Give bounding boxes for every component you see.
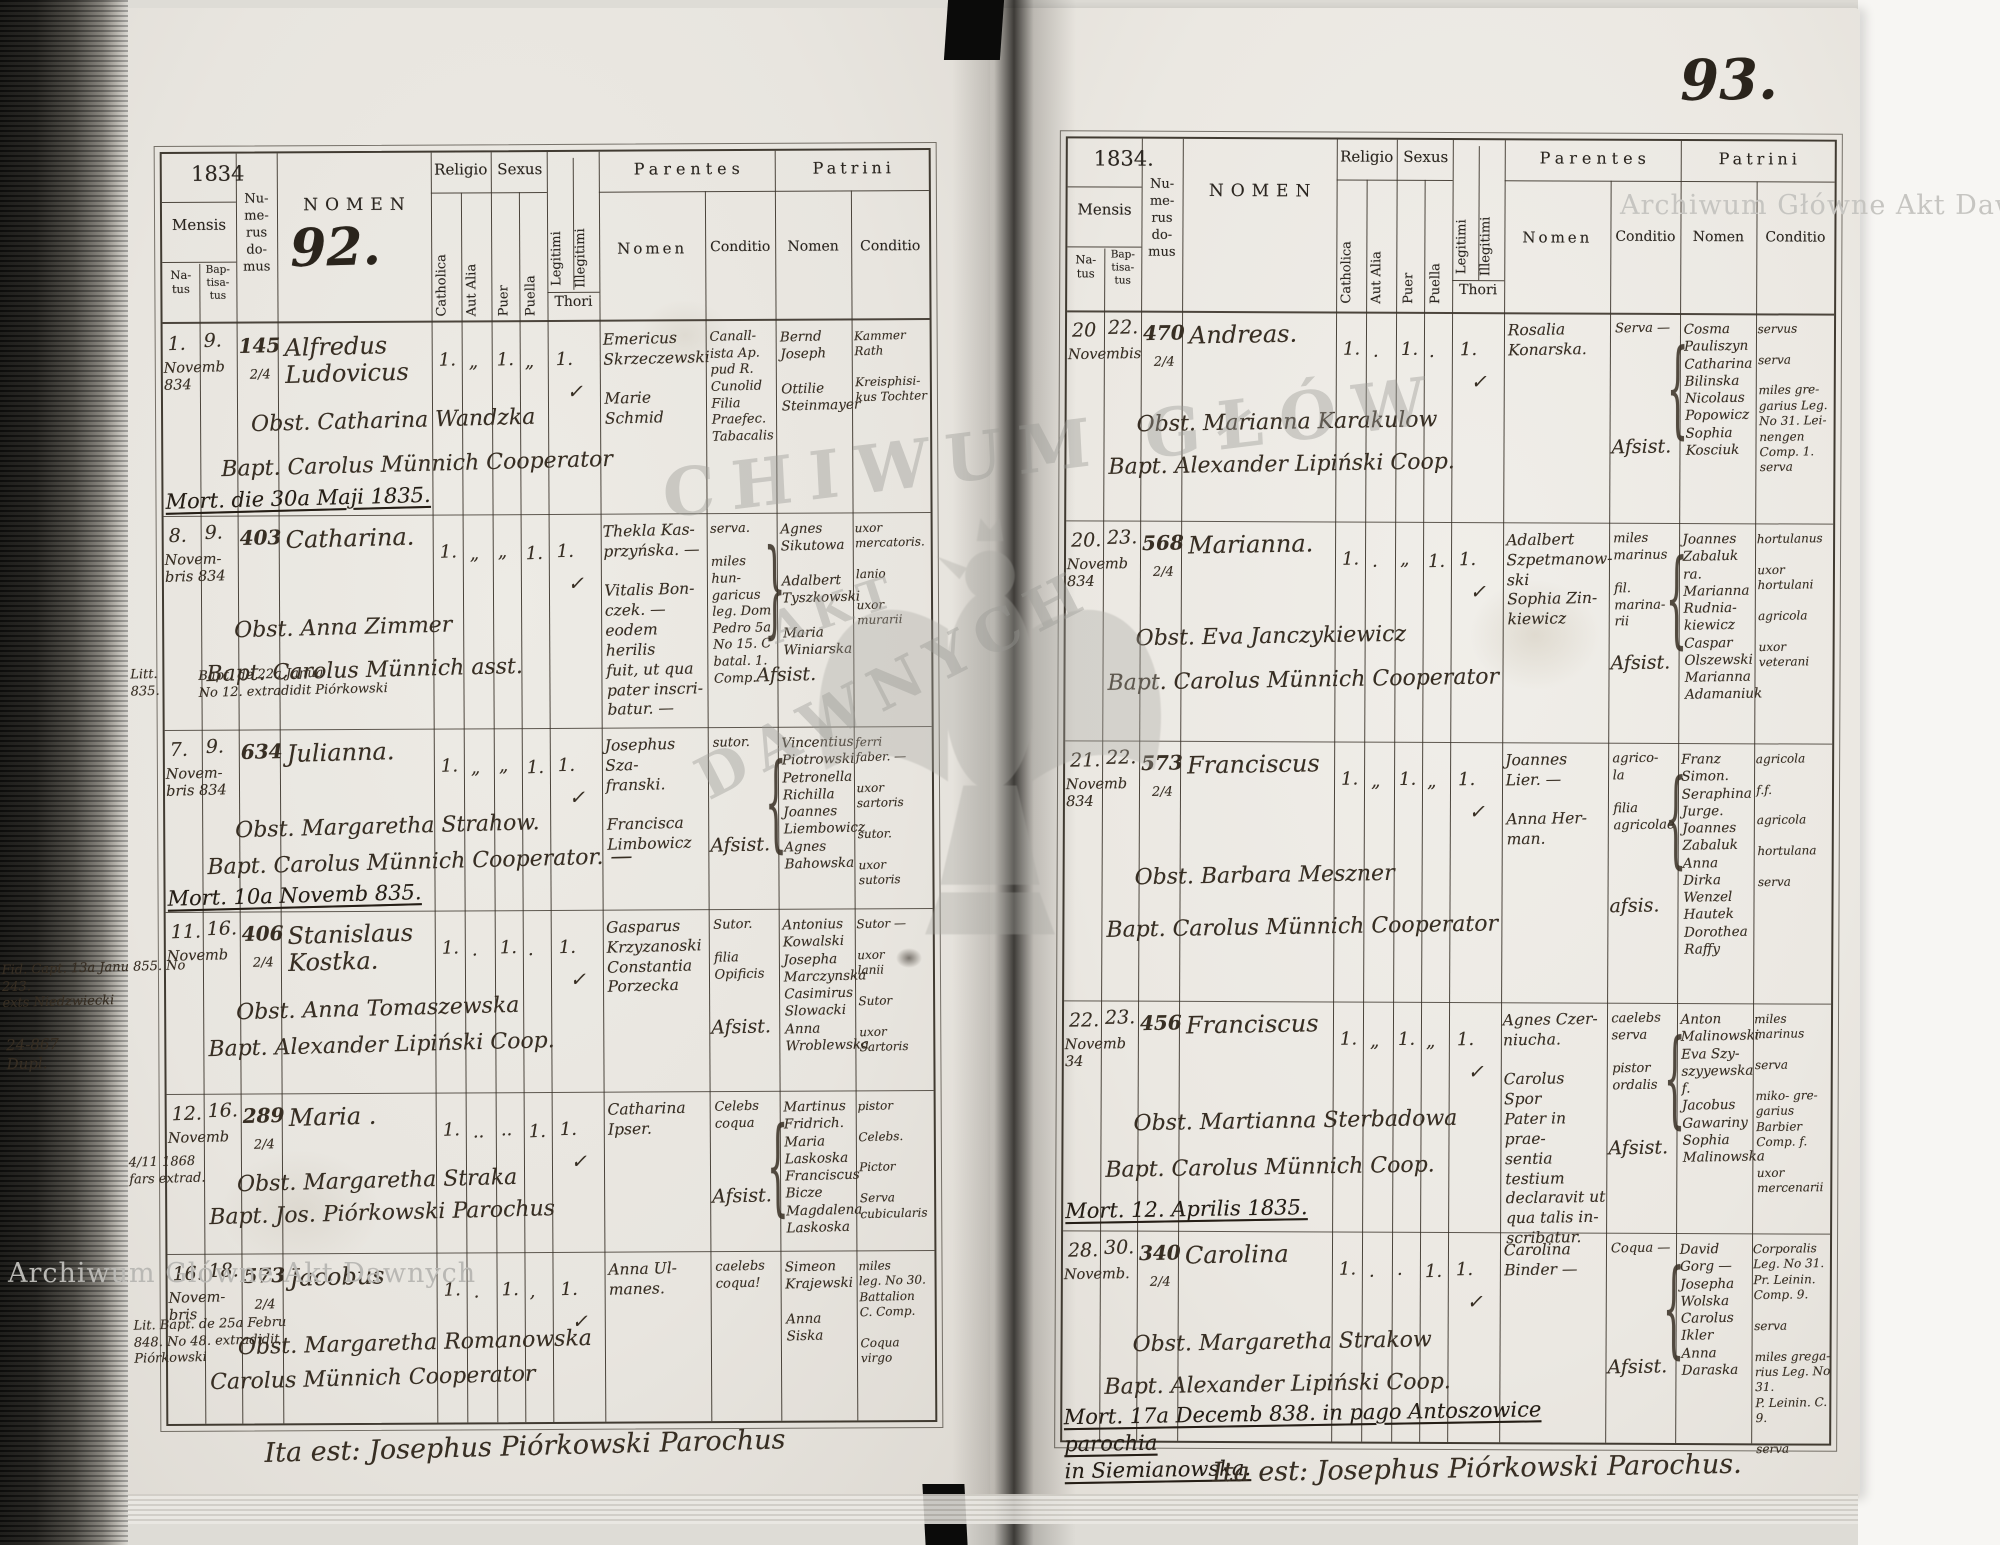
parents-name: Adalbert Szpetmanow- ski Sophia Zin- kie… [1506,530,1610,631]
right-page-table: 1834. Mensis Na- tus Bap- tisa- tus Nu- … [1060,136,1837,1445]
child-name: Julianna. [286,737,439,768]
house-number: 634 [240,739,282,766]
midwife-line: Obst. Margaretha Strakow [1132,1325,1472,1359]
parents-name: Agnes Czer- niucha. Carolus Spor Pater i… [1503,1010,1609,1250]
puella-label: Puella [523,216,539,316]
godparents-condition: uxor mercatoris. lanio uxor murarii [854,519,937,629]
legitimi-label: Legitimi [1454,160,1469,274]
godparents-name: Anton Malinowski Eva Szy- szyyewska f. J… [1680,1011,1753,1168]
mark-aut-alia: „ [471,756,481,779]
godparents-condition: ferri faber. — uxor sartoris sutor. uxor… [855,733,939,889]
baptisatus-day: 9. [204,521,223,546]
baptisatus-day: 23. [1105,1005,1136,1030]
baptisatus-day: 9. [203,329,222,354]
natus-day: 8. [168,524,187,549]
religio-label: Religio [428,160,494,178]
godparents-condition: pistor Celebs. Pictor Serva cubicularis [857,1097,940,1222]
illegitimi-label: Illegitimi [573,170,589,288]
natus-day: 7. [169,738,188,763]
mark-puer: . [1397,1258,1403,1281]
mark-puer: 1. [501,1278,519,1301]
house-number-fraction: 2/4 [253,955,274,972]
parents-name: Anna Ul- manes. [608,1258,711,1300]
baptizer-line: Bapt. Carolus Münnich Coop. [1105,1150,1525,1185]
house-number-fraction: 2/4 [1154,355,1175,372]
month-note: Novemb 834 [163,359,244,394]
nomen-label: NOMEN [1183,181,1337,202]
parentes-conditio-label: Conditio [705,239,775,255]
mark-catholica: 1. [442,936,460,959]
mark-puer: „ [499,754,509,777]
mark-aut-alia: . [1369,1260,1375,1283]
baptizer-line: Bapt. Alexander Lipiński Coop. [1104,1367,1524,1402]
parents-name: Thekla Kas- przyńska. — Vitalis Bon- cze… [603,520,710,721]
godparents-condition: Corporalis Leg. No 31. Pr. Leinin. Comp.… [1753,1241,1837,1457]
child-name: Alfredus Ludovicus [284,331,437,389]
checkmark-icon: ✓ [568,572,585,597]
mark-puer: „ [497,540,507,563]
midwife-line: Obst. Margaretha Strahow. [235,808,576,845]
house-number-fraction: 2/4 [1150,1275,1171,1292]
godparents-name: Martinus Fridrich. Maria Laskoska Franci… [783,1098,857,1238]
book-gutter-shadow [952,0,1076,1545]
midwife-line: Obst. Catharina Wandzka [251,402,592,439]
mark-aut-alia: . [1373,340,1379,363]
patrini-label: Patrini [775,158,929,178]
parentes-label: Parentes [599,159,775,179]
record-row: 11.16.Novemb4062/4Stanislaus Kostka.1..1… [166,908,934,1094]
mark-puella: 1. [525,542,543,565]
catholica-label: Catholica [434,205,450,317]
thori-label: Thori [547,294,599,310]
natus-day: 12. [171,1102,202,1127]
house-number: 403 [239,525,281,552]
record-row: 20.23.Novemb 8345682/4Marianna.1..„1.1.✓… [1065,520,1833,743]
godparents-name: Agnes Sikutowa Adalbert Tyszkowski Maria… [780,520,854,660]
assistens-note: Afsist. [711,1014,771,1040]
numerus-domus-label: Nu- me- rus do- mus [1141,177,1182,262]
mark-legitimi: 1. [559,1118,577,1141]
house-number: 456 [1140,1010,1182,1036]
checkmark-icon: ✓ [1469,800,1485,825]
mark-puella: . [528,938,534,961]
record-row: 2022.Novembis4702/4Andreas.1..1..1.✓Obst… [1066,310,1834,523]
baptizer-line: Bapt. Carolus Münnich Cooperator [1106,910,1526,945]
record-row: 12.16.Novemb2892/4Maria .1.....1.1.✓Obst… [167,1090,935,1254]
godparents-name: David Gorg — Josepha Wolska Carolus Ikle… [1680,1241,1752,1380]
mark-legitimi: 1. [560,1278,578,1301]
assistens-note: Afsist. [756,662,816,688]
mark-catholica: 1. [1343,337,1361,360]
mark-puella: . [1429,340,1435,363]
mark-aut-alia: „ [1370,1030,1380,1053]
patrini-label: Patrini [1681,149,1835,169]
patrini-nomen-label: Nomen [1680,229,1756,245]
record-row: 21.22.Novemb 8345732/4Franciscus1.„1.„1.… [1064,740,1832,1003]
assistens-note: Afsist. [710,832,770,858]
checkmark-icon: ✓ [569,786,586,811]
mark-catholica: 1. [441,754,459,777]
godparents-condition: agricola f.f. agricola hortulana serva [1756,751,1838,891]
baptisatus-day: 22. [1108,315,1139,340]
midwife-line: Obst. Margaretha Straka [237,1162,578,1199]
patrini-conditio-label: Conditio [1756,229,1834,245]
mark-puella: 1. [1428,550,1446,573]
margin-note: Fid. Capt. 13a Janu 855. No 243. exts Ni… [1,958,212,1013]
assistens-note: Afsist. [1607,1354,1667,1379]
house-number: 406 [241,921,283,948]
mark-aut-alia: „ [1371,770,1381,793]
godparents-condition: miles marinus serva miko- gre- garius Ba… [1754,1011,1837,1197]
book-strap-top [944,0,1004,60]
godparents-condition: miles leg. No 30. Battalion C. Comp. Coq… [858,1257,941,1367]
month-note: Novembis [1068,346,1148,364]
page-number: 93. [1680,44,1779,117]
mark-aut-alia: . [1372,550,1378,573]
mark-legitimi: 1. [556,540,574,563]
baptisatus-day: 18. [208,1258,239,1283]
house-number: 573 [243,1263,285,1290]
child-name: Marianna. [1188,530,1340,559]
parents-condition: Canall- ista Ap. pud R. Cunolid Filia Pr… [709,328,776,446]
assistens-note: Afsist. [1608,1136,1668,1161]
parents-name: Joannes Lier. — Anna Her- man. [1505,750,1609,851]
month-note: Novem- bris 834 [164,551,245,586]
parentes-conditio-label: Conditio [1610,229,1680,245]
mark-puella: , [529,1280,535,1303]
godparents-name: Bernd Joseph Ottilie Steinmayer [780,328,852,416]
baptisatus-day: 9. [205,735,224,760]
baptizer-line: Bapt. Jos. Piórkowski Parochus [209,1193,630,1232]
checkmark-icon: ✓ [567,380,584,405]
mark-aut-alia: „ [469,542,479,565]
aut-alia-label: Aut Alia [1369,198,1384,304]
catholica-label: Catholica [1339,192,1354,304]
page-number: 92. [289,214,381,283]
book-bottom-page-edges [128,1494,1858,1524]
puella-label: Puella [1428,204,1443,304]
parentes-nomen-label: Nomen [1504,228,1610,246]
mark-puer: 1. [500,936,518,959]
mark-legitimi: 1. [1458,768,1476,791]
scan-background [1858,0,2000,1545]
godparents-condition: Kammer Rath Kreisphisi- kus Tochter [854,327,936,406]
parents-name: Josephus Sza- franski. Francisca Limbowi… [605,734,710,856]
mark-puella: 1. [529,1120,547,1143]
mark-puella: 1. [527,756,545,779]
nomen-label: NOMEN [277,195,431,216]
godparents-condition: hortulanus uxor hortulani agricola uxor … [1757,531,1839,671]
aut-alia-label: Aut Alia [464,210,480,316]
margin-note: Lit. Bapt. de 25a Febru 848. No 48. extr… [133,1312,384,1368]
midwife-line: Obst. Martianna Sterbadowa [1133,1104,1473,1138]
mark-catholica: 1. [443,1278,461,1301]
godparents-name: Joannes Zabaluk ra. Marianna Rudnia- kie… [1682,531,1755,705]
baptisatus-label: Bap- tisa- tus [199,264,236,304]
child-name: Stanislaus Kostka. [287,919,440,977]
mark-legitimi: 1. [558,754,576,777]
godparents-name: Vincentius Piotrowski Petronella Richill… [781,734,855,874]
mensis-label: Mensis [162,216,236,234]
godparents-name: Franz Simon. Seraphina Jurge. Joannes Za… [1681,751,1754,959]
puer-label: Puer [496,226,511,316]
record-row: 28.30.Novemb.3402/4Carolina1...1.1.✓Obst… [1062,1230,1830,1443]
assistens-note: Afsist. [1611,434,1671,459]
house-number: 573 [1141,750,1183,776]
month-note: Novemb [168,1129,248,1148]
mark-puella: „ [524,350,534,373]
house-number-fraction: 2/4 [250,367,271,384]
checkmark-icon: ✓ [1470,580,1486,605]
natus-day: 11. [170,920,201,945]
house-number: 289 [242,1103,284,1130]
checkmark-icon: ✓ [570,968,587,993]
baptisatus-day: 22. [1106,745,1137,770]
puer-label: Puer [1401,214,1416,304]
record-row: 8.9.Novem- bris 834403Catharina.1.„„1.1.… [164,512,932,730]
year-label: 1834. [1068,146,1180,170]
parents-name: Rosalia Konarska. [1508,320,1611,361]
godparents-name: Simeon Krajewski Anna Siska [785,1258,857,1346]
month-note: Novem- bris 834 [166,765,247,800]
midwife-line: Obst. Anna Zimmer [234,609,575,646]
book-page-edges [0,0,128,1545]
baptisatus-label: Bap- tisa- tus [1104,248,1141,288]
mark-legitimi: 1. [1459,548,1477,571]
mark-puer: .. [500,1118,512,1141]
mark-puella: „ [1426,1030,1436,1053]
baptizer-line: Bapt. Carolus Münnich Cooperator [1107,663,1527,698]
mark-catholica: 1. [1340,1027,1358,1050]
illegitimi-label: Illegitimi [1478,158,1494,276]
mark-legitimi: 1. [559,936,577,959]
assistens-note: Afsist. [1610,650,1670,675]
baptisatus-day: 23. [1107,525,1138,550]
godparents-name: Cosma Pauliszyn Catharina Bilinska Nicol… [1684,321,1756,460]
house-number-fraction: 2/4 [1152,785,1173,802]
mark-catholica: 1. [1342,547,1360,570]
parents-condition: caelebs coqua! [715,1258,780,1293]
patrini-nomen-label: Nomen [775,238,851,254]
margin-note: 4/11 1868 fars extrad. [129,1152,260,1189]
house-number: 568 [1142,530,1184,556]
month-note: Novemb 34 [1065,1036,1146,1071]
table-header: 1834. Mensis Na- tus Bap- tisa- tus Nu- … [1068,138,1835,141]
mark-puer: 1. [1401,338,1419,361]
religio-label: Religio [1334,147,1400,165]
mark-legitimi: 1. [1456,1258,1474,1281]
numerus-domus-label: Nu- me- rus do- mus [236,191,277,276]
mark-aut-alia: . [473,1280,479,1303]
baptizer-line: Bapt. Alexander Lipiński Coop. [208,1025,629,1064]
child-name: Catharina. [285,523,438,554]
parents-condition: Sutor. filia Opificis [713,916,779,984]
record-row: 1.9.Novemb 8341452/4Alfredus Ludovicus1.… [163,320,931,516]
mark-catholica: 1. [1341,767,1359,790]
checkmark-icon: ✓ [1467,1290,1483,1315]
assistens-note: afsis. [1609,893,1659,918]
mark-aut-alia: „ [468,350,478,373]
mark-legitimi: 1. [1457,1028,1475,1051]
scanned-register-spread: 1834 Mensis Na- tus Bap- tisa- tus Nu- m… [0,0,2000,1545]
child-name: Carolina [1185,1240,1337,1269]
mark-puer: 1. [1398,1028,1416,1051]
mark-catholica: 1. [438,348,456,371]
baptisatus-day: 16. [207,1098,238,1123]
house-number: 340 [1139,1240,1181,1266]
mark-aut-alia: .. [473,1120,485,1143]
mark-catholica: 1. [1339,1257,1357,1280]
checkmark-icon: ✓ [1471,370,1487,395]
child-name: Franciscus [1186,1010,1338,1039]
house-number: 470 [1143,320,1185,346]
natus-label: Na- tus [162,268,199,297]
margin-note: Bapt. de 22a Janua No 12. extradidit Pió… [198,661,499,702]
record-row: 16.18.Novem- bris5732/4Jacobus1..1.,1.✓O… [167,1250,935,1422]
mark-puella: 1. [1425,1260,1443,1283]
natus-day: 16. [172,1262,203,1287]
left-page-table: 1834 Mensis Na- tus Bap- tisa- tus Nu- m… [160,148,938,1426]
patrini-conditio-label: Conditio [851,238,929,254]
legitimi-label: Legitimi [549,172,565,286]
parents-name: Catharina Ipser. [607,1098,710,1140]
mark-legitimi: 1. [1460,338,1478,361]
midwife-line: Obst. Barbara Meszner [1134,858,1474,892]
mark-legitimi: 1. [555,348,573,371]
sexus-label: Sexus [492,160,548,178]
checkmark-icon: ✓ [1468,1060,1484,1085]
parentes-nomen-label: Nomen [599,239,705,258]
parents-name: Gasparus Krzyzanoski Constantia Porzecka [606,916,710,998]
record-row: 7.9.Novem- bris 834634Julianna.1.„„1.1.✓… [165,726,933,912]
house-number-fraction: 2/4 [1153,565,1174,582]
baptisatus-day: 16. [206,916,237,941]
mark-puer: „ [1400,548,1410,571]
mark-puer: 1. [1399,768,1417,791]
mensis-label: Mensis [1067,200,1141,218]
year-label: 1834 [162,161,274,186]
godparents-name: Antonius Kowalski Josepha Marczynska Cas… [782,916,856,1056]
month-note: Novemb 834 [1067,556,1148,591]
baptizer-line: Bapt. Alexander Lipiński Coop. [1108,447,1528,482]
child-name: Jacobus [289,1261,442,1292]
mark-catholica: 1. [439,540,457,563]
natus-day: 1. [167,332,186,357]
child-name: Maria . [288,1101,441,1132]
midwife-line: Obst. Marianna Karakulow [1136,405,1476,439]
month-note: Novemb 834 [1066,776,1147,811]
mark-puer: 1. [496,348,514,371]
child-name: Andreas. [1189,320,1341,349]
parentes-label: Parentes [1505,148,1681,168]
house-number: 145 [238,333,280,360]
baptisatus-day: 30. [1104,1235,1135,1260]
assistens-note: Afsist. [712,1183,772,1209]
godparents-condition: Sutor — uxor lanii Sutor uxor Sartoris [856,915,940,1055]
record-row: 22.23.Novemb 34456Franciscus1.„1.„1.✓Obs… [1063,1000,1831,1233]
death-note: Mort. 12. Aprilis 1835. [1065,1191,1525,1225]
mark-puella: „ [1427,770,1437,793]
mark-aut-alia: . [472,938,478,961]
thori-label: Thori [1452,282,1504,298]
child-name: Franciscus [1187,750,1339,779]
parents-name: Carolina Binder — [1504,1240,1607,1281]
mark-catholica: 1. [442,1118,460,1141]
parents-name: Emericus Skrzeczewski Marie Schmid [603,328,708,430]
margin-note: 24-867 Dupl. [6,1033,137,1075]
midwife-line: Obst. Anna Tomaszewska [236,990,577,1027]
godparents-condition: servus serva miles gre- garius Leg. No 3… [1757,321,1840,476]
sexus-label: Sexus [1398,148,1454,166]
table-header: 1834 Mensis Na- tus Bap- tisa- tus Nu- m… [162,150,929,154]
house-number-fraction: 2/4 [254,1297,275,1314]
midwife-line: Obst. Eva Janczykiewicz [1135,620,1475,654]
